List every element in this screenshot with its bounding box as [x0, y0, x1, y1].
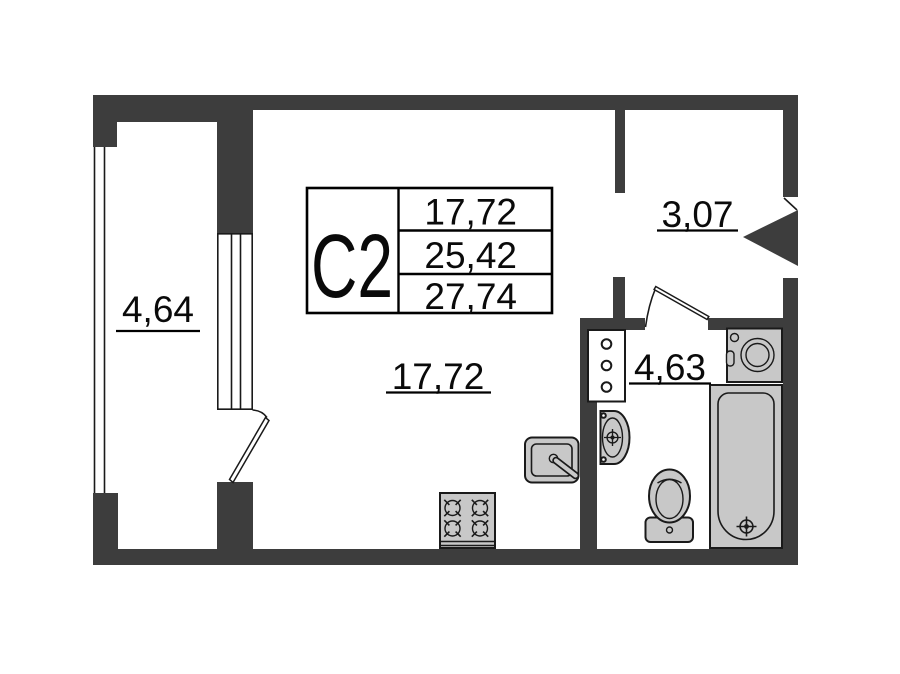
hallway-area-label: 3,07	[661, 194, 733, 235]
legend-value-1: 17,72	[424, 192, 517, 233]
balcony-door-icon	[230, 418, 270, 483]
door-swing-arc	[646, 289, 656, 328]
door-swing-arc	[253, 410, 268, 418]
main-room-area-label: 17,72	[392, 356, 485, 397]
entrance-door-icon	[743, 210, 798, 266]
plumbing-riser	[588, 330, 625, 402]
bathtub	[710, 385, 782, 548]
legend-value-3: 27,74	[424, 276, 517, 317]
balcony-window	[217, 233, 253, 410]
wall-balcony-pillar	[217, 482, 253, 549]
floor-plan: С2 17,72 25,42 27,74 4,64 17,72 3,07 4,6…	[0, 0, 900, 674]
entrance-door	[743, 198, 798, 266]
kitchen-sink	[525, 438, 579, 483]
detergent-drawer	[727, 351, 735, 366]
wall-bathroom-top-left	[580, 318, 645, 330]
legend-value-2: 25,42	[424, 235, 517, 276]
wall-hallway-stub-upper	[615, 110, 625, 193]
washing-machine	[727, 329, 783, 383]
wall-right-upper	[783, 95, 798, 197]
bathroom-door	[646, 287, 709, 328]
balcony-glazing	[95, 147, 105, 493]
wall-top-main	[253, 95, 798, 110]
bathroom-door-icon	[654, 287, 709, 320]
toilet	[646, 470, 694, 543]
balcony-area-label: 4,64	[122, 289, 194, 330]
wall-balcony-partition	[217, 122, 253, 233]
wall-right-lower	[783, 278, 798, 565]
bathroom-area-label: 4,63	[634, 347, 706, 388]
wall-bottom	[93, 549, 798, 565]
stove	[440, 493, 495, 548]
legend-table: С2 17,72 25,42 27,74	[307, 188, 552, 317]
wall-pillar-top-left	[93, 95, 117, 147]
unit-label: С2	[311, 217, 393, 317]
floor-plan-page: С2 17,72 25,42 27,74 4,64 17,72 3,07 4,6…	[0, 0, 900, 674]
balcony-door	[230, 410, 270, 483]
wall-hallway-stub-lower	[613, 277, 625, 320]
wash-basin	[601, 411, 630, 464]
